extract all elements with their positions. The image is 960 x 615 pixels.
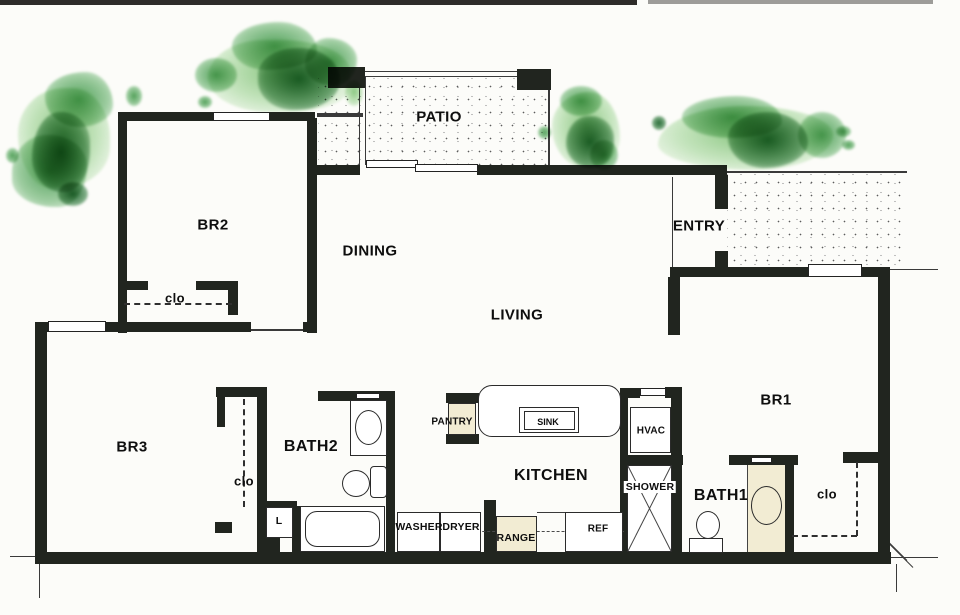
room-label-living: LIVING [491,307,543,324]
br1-closet-dashed-v [856,462,858,536]
wall-br2-north-left [118,112,213,121]
wall-br3-closet-front [217,397,225,427]
wall-top-main-left [310,165,360,175]
wall-pantry-bottom [446,434,479,444]
ext-line-se-vert [896,564,897,592]
bath2-toilet-tank [370,466,387,498]
room-label-br3: BR3 [116,439,147,456]
wall-br3-north-mid [106,322,251,332]
wall-living-br1-stub [668,277,680,335]
patio-edge-top-a [362,71,520,72]
patio-slider-panel-a [366,160,418,168]
tree-patio-dot-b [590,140,618,170]
bathtub-inner [305,511,380,547]
ext-line-sw-horiz [10,556,35,557]
br1-closet-dashed-h [792,535,857,537]
wall-hvac-west [620,388,628,465]
room-label-entry: ENTRY [673,218,725,235]
wall-bath2-east [386,391,395,552]
wall-shower-east [671,465,682,552]
scan-border-right [648,0,933,4]
entry-walkway-paving [727,173,903,267]
tree-left-dot-b [6,148,19,163]
hvac-louver-door [640,388,666,396]
shower-stall [627,465,672,552]
tree-left-core [32,112,90,192]
shower-label: SHOWER [624,481,676,493]
tree-entry-dot-b [842,140,855,150]
tree-entry-dot-c [652,116,666,130]
wall-laundry-stub [484,500,496,552]
bath1-toilet-bowl [696,511,720,539]
closet-label-br2: clo [165,291,185,306]
tree-patio-dot-a [538,126,551,139]
room-label-patio: PATIO [416,109,462,126]
pantry-label: PANTRY [431,417,472,428]
room-label-bath2: BATH2 [284,438,338,456]
bath2-wall-notch [356,393,380,399]
closet-label-br3: clo [234,474,254,489]
tree-br2-right [305,38,357,86]
wall-east-exterior [878,267,890,562]
tree-left-dot-c [58,182,88,206]
room-label-br2: BR2 [197,217,228,234]
br3-closet-dashed [243,399,245,507]
sink-label: SINK [537,417,559,427]
wall-below-linen [267,538,280,552]
se-corner-tick-b [889,543,914,568]
ext-line-sw-vert [39,564,40,598]
wall-west-exterior [35,322,47,558]
wall-br2-east [307,118,317,333]
tree-patio-top [560,86,602,116]
wall-south-exterior [35,552,891,564]
ext-line-se-horiz [891,557,938,558]
wall-br1-closet-stub [843,452,878,463]
room-label-kitchen: KITCHEN [514,467,588,485]
wall-br2-closet-stub-left [120,281,148,290]
ext-line-entry-east [890,269,938,270]
room-label-bath1: BATH1 [694,487,748,505]
wall-hvac-south [620,455,683,465]
dryer-label: DRYER [442,521,479,533]
linen-label: L [276,515,283,527]
room-label-dining: DINING [343,243,398,260]
window-br3 [48,321,106,332]
window-br1-entry [808,264,862,277]
wall-entry-jamb-bottom [715,251,728,267]
wall-entry-south-left [670,267,808,277]
hvac-label: HVAC [637,426,665,437]
bath2-sink-basin [355,410,382,445]
range-label: RANGE [497,532,536,544]
room-label-br1: BR1 [760,392,791,409]
wall-br3-closet-stub [215,522,232,533]
washer-label: WASHER [395,521,442,533]
br3-door-head [251,329,304,331]
scan-border-left [0,0,637,5]
patio-edge-top-b [362,76,520,77]
patio-pier-right [517,69,551,90]
closet-label-br1: clo [817,487,837,502]
window-br2 [213,112,270,121]
tree-entry-core [728,112,808,168]
bath1-wall-notch [751,457,772,463]
bath1-toilet-tank [689,538,723,553]
patio-slider-panel-b [415,164,478,172]
ref-label: REF [588,524,609,535]
tree-br2-dot [198,96,212,108]
tree-entry-dot-a [836,126,851,137]
wall-bath1-stall-east [785,455,794,552]
tree-left-dot-a [126,86,142,106]
wall-entry-jamb-top [715,175,728,209]
bath2-toilet-bowl [342,470,370,497]
wall-br2-closet-side [228,281,238,315]
walkway-edge-top [727,171,907,173]
wall-br3-north-corner [303,322,317,332]
planter-edge [317,113,363,117]
counter-edge-ref [537,512,565,513]
tree-br2-left [195,58,237,92]
wall-hvac-east [671,387,682,465]
shower-x-icon [628,466,671,551]
wall-br2-west [118,112,127,333]
wall-tub-stub [292,506,300,552]
patio-edge-west-b [365,77,366,165]
wall-pantry-top [446,393,479,403]
tree-br2-spill [345,80,363,106]
bath1-stall-basin [751,486,782,525]
wall-hvac-cap-nw [620,388,640,398]
floor-plan: PATIO BR2 DINING ENTRY LIVING BR3 BR1 KI… [0,0,960,615]
